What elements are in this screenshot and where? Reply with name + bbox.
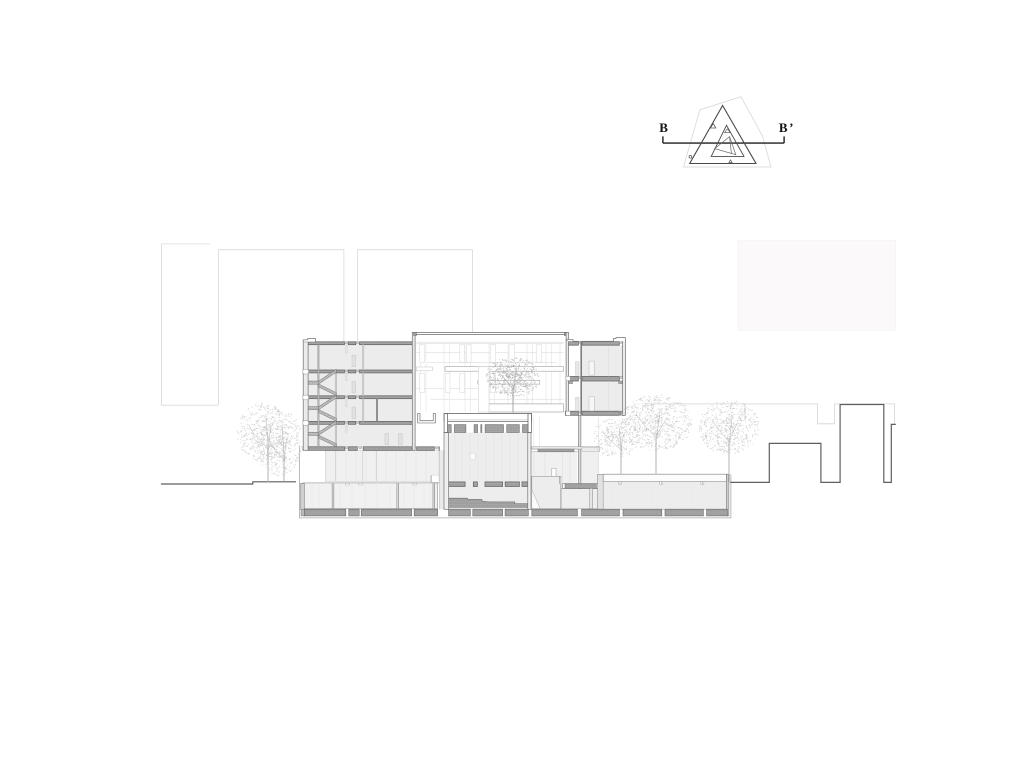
svg-text:B: B [659,120,668,135]
svg-text:B’: B’ [779,120,794,135]
